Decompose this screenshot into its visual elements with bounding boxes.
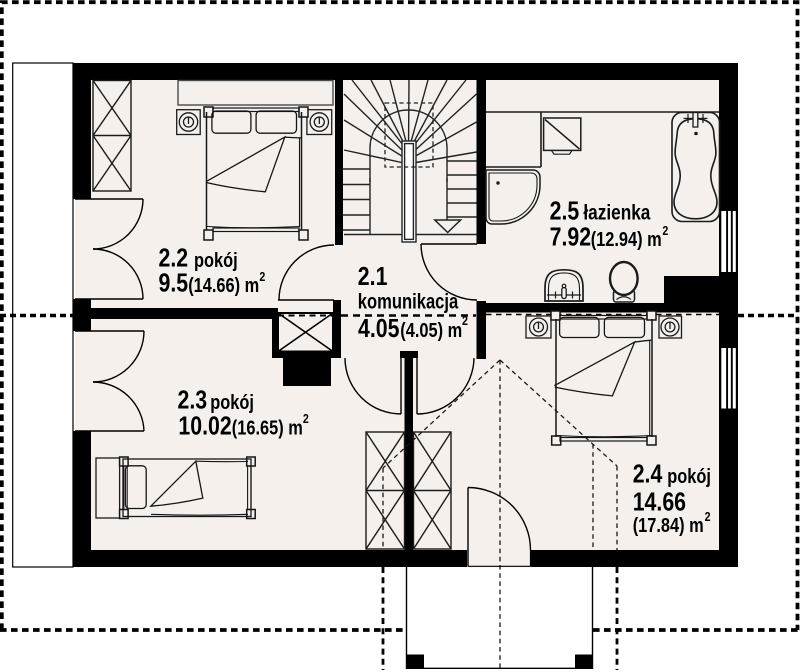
svg-text:4.05: 4.05 — [358, 314, 399, 344]
svg-text:9.5: 9.5 — [159, 269, 189, 299]
svg-text:2: 2 — [462, 313, 468, 328]
svg-text:2: 2 — [259, 269, 265, 284]
svg-text:(12.94) m: (12.94) m — [591, 227, 662, 250]
svg-text:2: 2 — [662, 223, 668, 238]
svg-text:2.5: 2.5 — [550, 197, 580, 227]
svg-text:10.02: 10.02 — [178, 411, 231, 441]
svg-text:komunikacja: komunikacja — [358, 291, 459, 314]
svg-text:2: 2 — [303, 411, 309, 426]
svg-text:2: 2 — [705, 509, 711, 524]
svg-text:2.1: 2.1 — [358, 262, 388, 292]
svg-text:(4.05) m: (4.05) m — [400, 318, 462, 341]
svg-text:(14.66) m: (14.66) m — [188, 273, 259, 296]
svg-text:2.4: 2.4 — [633, 460, 663, 490]
svg-text:pokój: pokój — [210, 390, 254, 413]
svg-text:7.92: 7.92 — [550, 223, 591, 253]
svg-text:pokój: pokój — [667, 464, 711, 487]
svg-text:(16.65) m: (16.65) m — [232, 416, 303, 439]
svg-text:pokój: pokój — [194, 248, 238, 271]
svg-text:łazienka: łazienka — [583, 202, 650, 225]
svg-text:(17.84) m: (17.84) m — [633, 513, 704, 536]
